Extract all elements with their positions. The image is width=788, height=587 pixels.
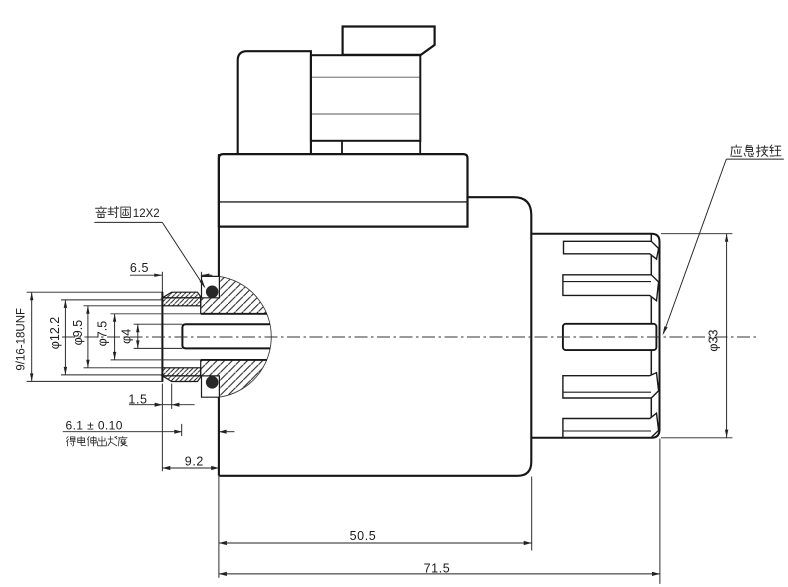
svg-text:φ12.2: φ12.2 bbox=[48, 317, 62, 349]
svg-text:φ4: φ4 bbox=[120, 329, 134, 344]
svg-text:1.5: 1.5 bbox=[128, 392, 147, 406]
svg-text:φ33: φ33 bbox=[707, 330, 721, 352]
svg-text:6.5: 6.5 bbox=[130, 261, 149, 275]
svg-text:9.2: 9.2 bbox=[185, 454, 204, 468]
svg-text:φ9.5: φ9.5 bbox=[71, 320, 85, 346]
svg-text:71.5: 71.5 bbox=[424, 561, 451, 575]
svg-text:50.5: 50.5 bbox=[350, 529, 377, 543]
svg-text:12X2: 12X2 bbox=[133, 208, 160, 220]
svg-text:9/16-18UNF: 9/16-18UNF bbox=[16, 308, 28, 371]
svg-text:6.1 ± 0.10: 6.1 ± 0.10 bbox=[66, 418, 123, 432]
svg-text:φ7.5: φ7.5 bbox=[96, 321, 110, 347]
